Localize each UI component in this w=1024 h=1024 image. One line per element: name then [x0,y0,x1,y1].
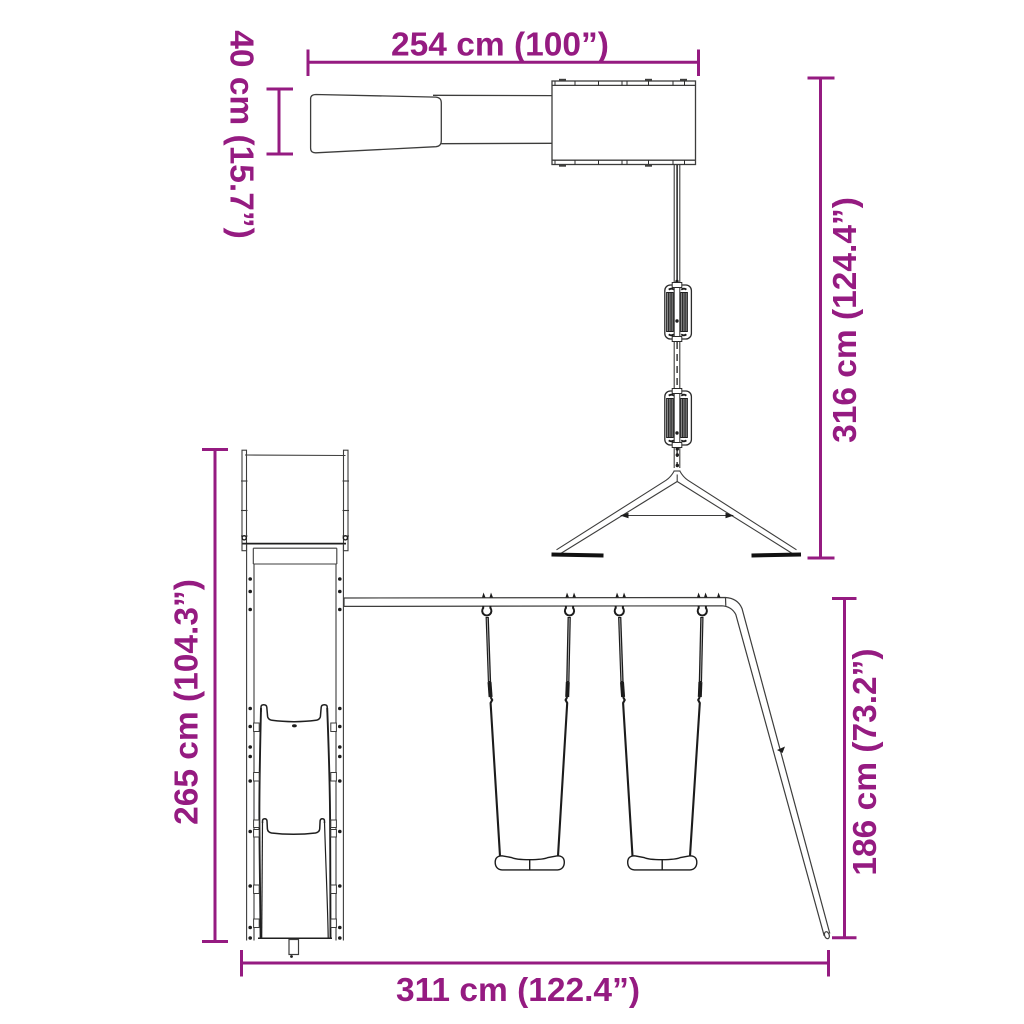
svg-text:316 cm (124.4”): 316 cm (124.4”) [827,197,864,443]
svg-text:186 cm (73.2”): 186 cm (73.2”) [847,648,884,875]
svg-text:265 cm (104.3”): 265 cm (104.3”) [168,579,205,825]
svg-text:311 cm (122.4”): 311 cm (122.4”) [396,972,640,1009]
svg-text:40 cm (15.7”): 40 cm (15.7”) [223,30,260,239]
svg-text:254 cm (100”): 254 cm (100”) [391,27,609,64]
